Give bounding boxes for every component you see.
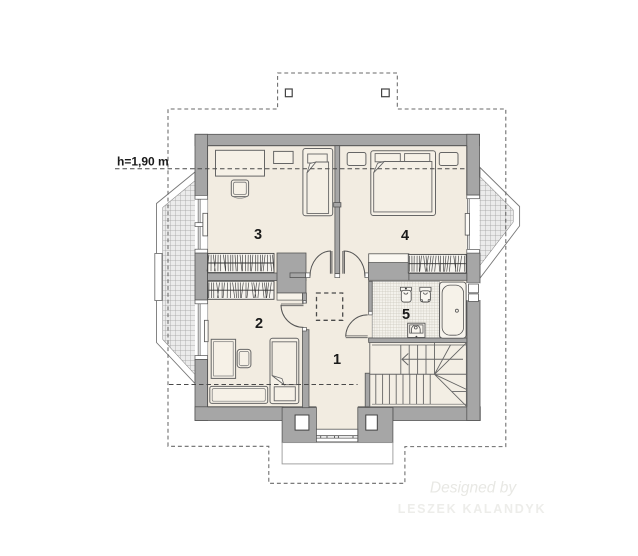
svg-text:2: 2 bbox=[255, 316, 263, 332]
svg-text:5: 5 bbox=[402, 307, 410, 323]
svg-text:LESZEK KALANDYK: LESZEK KALANDYK bbox=[398, 502, 546, 516]
svg-text:h=1,90 m: h=1,90 m bbox=[117, 155, 169, 169]
svg-text:Designed by: Designed by bbox=[430, 480, 517, 497]
svg-text:4: 4 bbox=[401, 228, 409, 244]
svg-text:3: 3 bbox=[254, 227, 262, 243]
svg-text:1: 1 bbox=[333, 352, 341, 368]
